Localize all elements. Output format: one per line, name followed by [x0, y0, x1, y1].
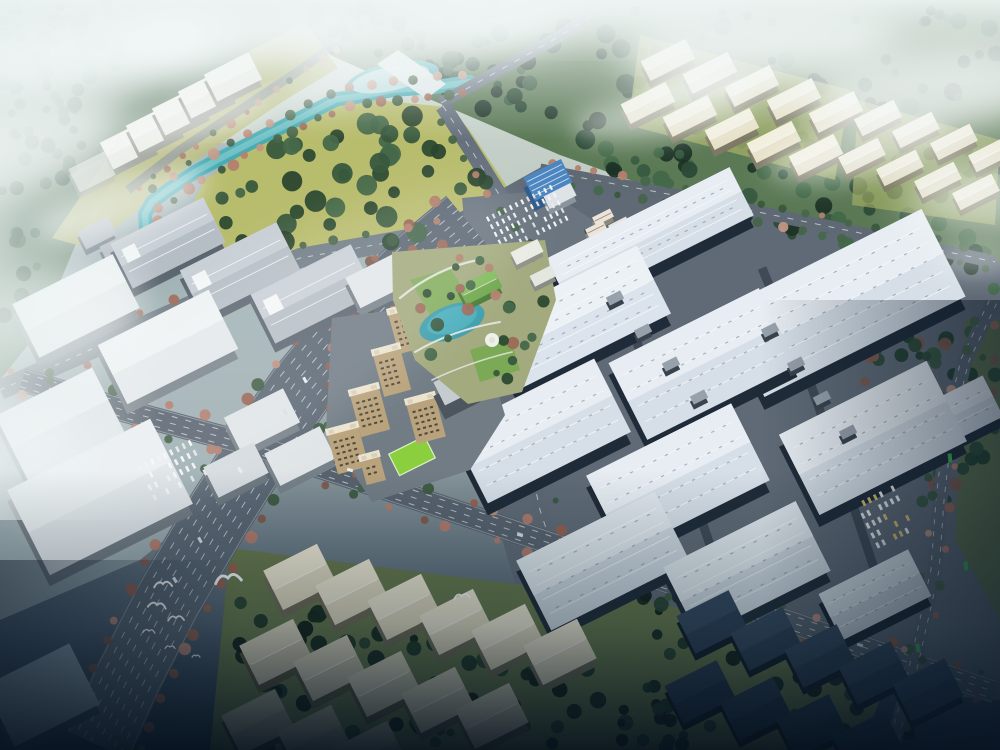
- right-edge-shade: [760, 300, 1000, 750]
- left-fog-band: [0, 0, 160, 520]
- aerial-masterplan-rendering: [0, 0, 1000, 750]
- bottom-left-shade: [0, 560, 240, 750]
- rendering-canvas: [0, 0, 1000, 750]
- courtyard-pavilion: [485, 333, 499, 347]
